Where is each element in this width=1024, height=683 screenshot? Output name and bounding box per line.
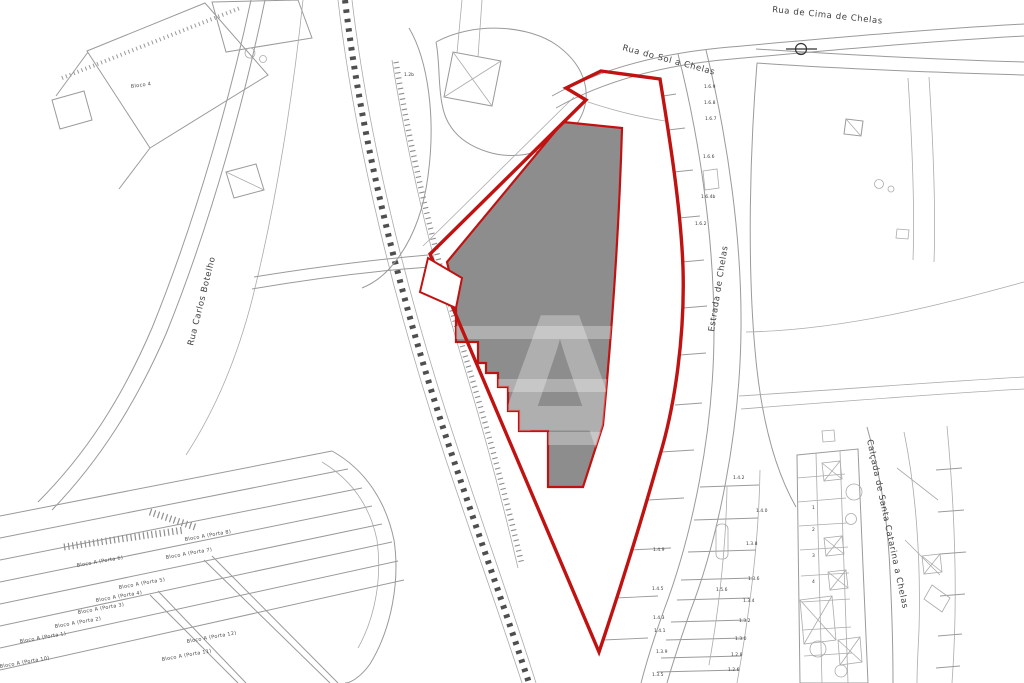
- lot-number: 1.3.2: [739, 618, 751, 624]
- lot-number: 1.4.1: [654, 628, 666, 634]
- rua-de-cima-road: [756, 44, 1024, 63]
- field-lines: [908, 77, 935, 262]
- building-outline: [87, 3, 268, 148]
- lot-number: 1.6.8: [704, 100, 716, 106]
- small-building: [52, 91, 92, 129]
- round-building: [810, 641, 826, 657]
- street-label: Rua do Sol a Chelas: [621, 43, 716, 77]
- loop-road: [362, 28, 431, 288]
- lot-number: 1.3.8: [746, 541, 758, 547]
- bus-shelter: [716, 524, 728, 559]
- lot-number: 1.4.2: [733, 475, 745, 481]
- block-label: Bloco A (Porta 1): [19, 631, 66, 645]
- cadastral-map: A Rua do Sol a ChelasRua de Cima de Chel…: [0, 0, 1024, 683]
- watermark-letter: A: [479, 266, 642, 518]
- lot-number: 1.6.4b: [701, 194, 715, 200]
- field-boundary: [757, 63, 1024, 75]
- building-outline: [212, 0, 312, 52]
- mid-right-road: [739, 377, 1024, 409]
- building-diagonal: [226, 172, 264, 190]
- cluster-verticals: [816, 451, 848, 683]
- small-tank: [875, 180, 884, 189]
- lot-number: 1.2.6: [728, 667, 740, 673]
- small-building: [896, 229, 909, 239]
- block-label: Bloco A (Porta 11): [161, 648, 212, 663]
- calcada-area: [797, 426, 966, 683]
- lot-number: 3: [812, 553, 815, 559]
- street-label: Calçada de Santa Catarina a Chelas: [864, 439, 910, 610]
- block-label: Bloco A (Porta 12): [186, 630, 237, 645]
- block-label: Bloco A (Porta 8): [184, 529, 231, 543]
- lot-number: 1.3.9: [656, 649, 668, 655]
- lot-number: 1: [812, 505, 815, 511]
- small-tank: [260, 56, 267, 63]
- lot-number: 1.3.4: [743, 598, 755, 604]
- lot-number: 1.3.0: [735, 636, 747, 642]
- building-connectors: [56, 52, 150, 189]
- far-right-ticks: [936, 468, 966, 668]
- small-tank: [888, 186, 894, 192]
- lot-number: 1.4.0: [756, 508, 768, 514]
- lot-line-apex: [588, 102, 665, 121]
- calcada-edge: [904, 432, 919, 683]
- lot-number: 1.6.2: [695, 221, 707, 227]
- field-boundary: [746, 282, 1024, 332]
- lot-number: 1.2.8: [731, 652, 743, 658]
- block-label: Bloco A (Porta 10): [0, 655, 50, 670]
- street-label: Estrada de Chelas: [707, 245, 731, 333]
- estate-streets: [150, 556, 338, 683]
- street-label: Rua de Cima de Chelas: [772, 5, 884, 27]
- topright-field: [739, 63, 1024, 507]
- round-building: [846, 514, 857, 525]
- road-edge: [38, 0, 251, 502]
- lot-number: 1.6.6: [703, 154, 715, 160]
- lot-number: 1.4.9: [653, 547, 665, 553]
- road-edge: [186, 0, 303, 455]
- estate-boundary: [332, 451, 396, 683]
- block-label: Bloco A (Porta 2): [54, 616, 101, 630]
- lot-number: 1.2b: [404, 72, 414, 78]
- field-boundary: [750, 63, 796, 507]
- building-diagonal: [846, 119, 861, 136]
- housing-estate: [0, 451, 404, 683]
- lot-number: 1.3.6: [748, 576, 760, 582]
- rua-do-sol-road: [552, 24, 1024, 108]
- cluster-outline: [797, 449, 868, 683]
- stair-symbol: [64, 530, 184, 547]
- lot-number: 1.4.5: [652, 586, 664, 592]
- lot-number: 1.6.7: [705, 116, 717, 122]
- lot-number: 1.5.6: [716, 587, 728, 593]
- round-building: [835, 665, 847, 677]
- far-right-road: [947, 426, 955, 683]
- topleft-buildings: [52, 0, 312, 198]
- lot-number: 2: [812, 527, 815, 533]
- block-label: Bloco 4: [130, 81, 151, 90]
- lot-number: 1.3.5: [652, 672, 664, 678]
- lot-number: 4: [812, 579, 815, 585]
- parcel-layer: A: [420, 71, 690, 652]
- lot-number: 1.6.9: [704, 84, 716, 90]
- block-labels: Bloco A (Porta 8)Bloco A (Porta 7)Bloco …: [0, 81, 237, 670]
- small-lot-box: [703, 169, 719, 190]
- lot-number: 1.4.3: [653, 615, 665, 621]
- block-label: Bloco A (Porta 6): [76, 555, 123, 569]
- crossing-road: [252, 255, 430, 289]
- block-label: Bloco A (Porta 7): [165, 547, 212, 561]
- block-label: Bloco A (Porta 5): [118, 577, 165, 591]
- stair-symbol: [150, 512, 195, 527]
- embankment-hachure: [62, 8, 240, 78]
- rua-carlos-botelho-road: [38, 0, 303, 510]
